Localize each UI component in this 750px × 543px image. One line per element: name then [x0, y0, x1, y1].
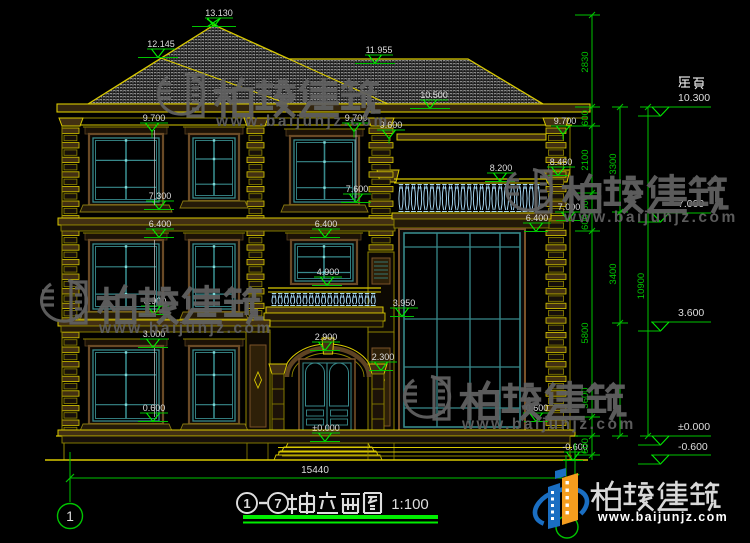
svg-text:3.950: 3.950: [393, 298, 416, 308]
svg-text:4.900: 4.900: [317, 267, 340, 277]
svg-text:12.145: 12.145: [147, 39, 175, 49]
svg-text:15440: 15440: [301, 465, 329, 476]
svg-text:13.130: 13.130: [205, 8, 233, 18]
svg-text:9.700: 9.700: [143, 113, 166, 123]
svg-text:2100: 2100: [580, 149, 591, 170]
svg-text:3300: 3300: [608, 153, 619, 174]
svg-text:9.700: 9.700: [554, 116, 577, 126]
svg-text:7: 7: [274, 496, 281, 511]
svg-text:0.600: 0.600: [143, 403, 166, 413]
svg-text:-0.600: -0.600: [678, 441, 708, 453]
svg-text:600: 600: [580, 438, 591, 454]
svg-text:600: 600: [580, 110, 591, 126]
svg-text:1: 1: [66, 508, 74, 524]
svg-text:10.300: 10.300: [678, 92, 710, 104]
svg-text:±0.000: ±0.000: [678, 421, 710, 433]
svg-text:11.955: 11.955: [366, 45, 393, 55]
svg-text:3.600: 3.600: [678, 307, 704, 319]
svg-text:1:100: 1:100: [391, 496, 429, 513]
svg-text:3400: 3400: [608, 263, 619, 284]
svg-text:7.600: 7.600: [346, 184, 369, 194]
svg-text:6.400: 6.400: [526, 213, 549, 223]
svg-text:6.400: 6.400: [315, 219, 338, 229]
svg-text:www.baijunjz.com: www.baijunjz.com: [461, 416, 636, 433]
svg-text:www.baijunjz.com: www.baijunjz.com: [597, 510, 728, 524]
svg-text:www.baijunjz.com: www.baijunjz.com: [215, 113, 390, 130]
svg-text:10.500: 10.500: [420, 90, 448, 100]
svg-text:2.900: 2.900: [315, 332, 338, 342]
svg-text:5800: 5800: [580, 322, 591, 343]
svg-text:6.400: 6.400: [149, 219, 172, 229]
svg-text:2.300: 2.300: [372, 352, 395, 362]
svg-text:1: 1: [243, 496, 250, 511]
svg-text:8.460: 8.460: [550, 157, 573, 167]
svg-text:www.baijunjz.com: www.baijunjz.com: [98, 320, 273, 337]
svg-text:10900: 10900: [636, 273, 647, 299]
svg-text:2830: 2830: [580, 51, 591, 72]
svg-text:www.baijunjz.com: www.baijunjz.com: [563, 209, 738, 226]
svg-text:±0.000: ±0.000: [312, 423, 339, 433]
svg-text:7.300: 7.300: [149, 191, 172, 201]
svg-text:8.200: 8.200: [490, 163, 513, 173]
